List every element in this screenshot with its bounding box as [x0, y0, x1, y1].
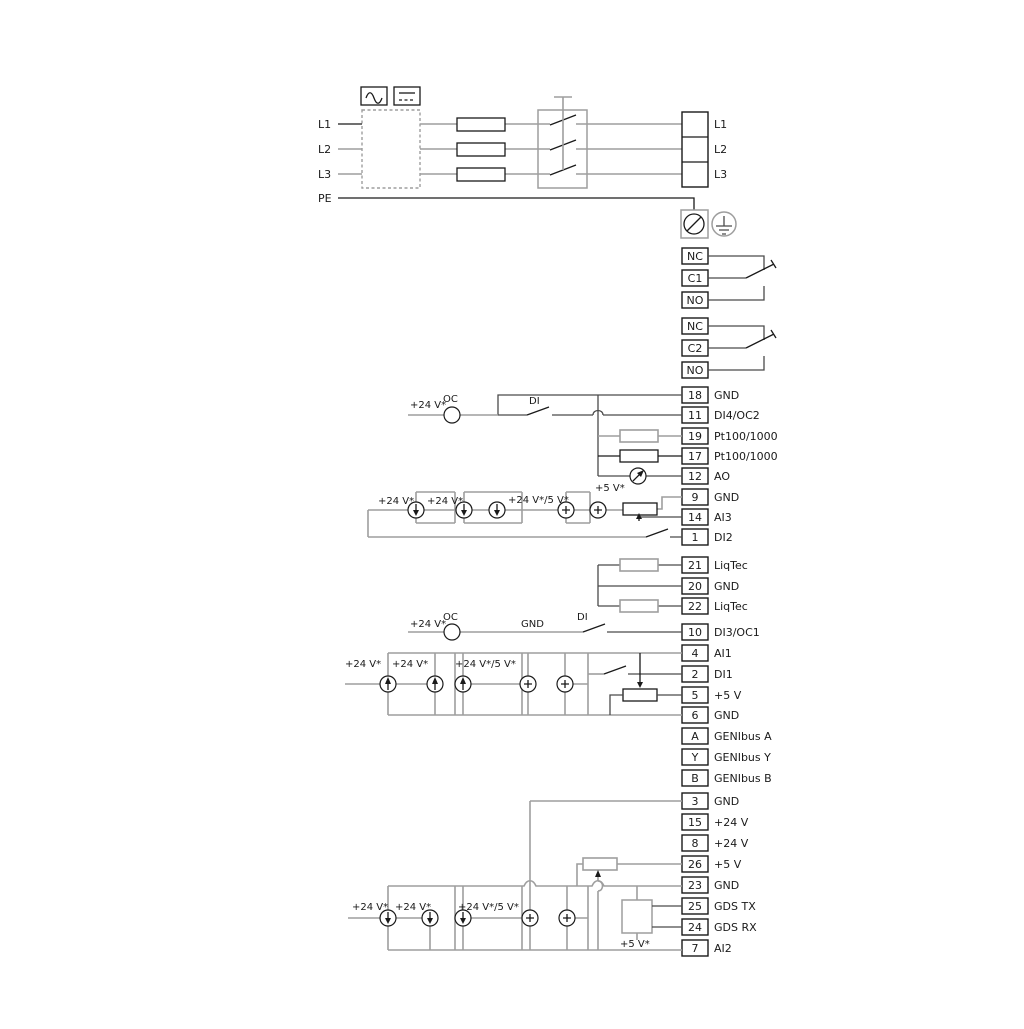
terminal-b: B: [691, 772, 699, 785]
terminal-14: 14: [688, 511, 702, 524]
pt100-resistor-19: [620, 430, 658, 442]
terminal-b-label: GENIbus B: [714, 772, 772, 785]
terminal-19-label: Pt100/1000: [714, 430, 778, 443]
v24-v5-label: +24 V*/5 V*: [455, 659, 516, 670]
v24-label: +24 V*: [392, 659, 428, 670]
relay2-c2: C2: [688, 342, 703, 355]
terminal-7: 7: [692, 942, 699, 955]
terminal-23-label: GND: [714, 879, 739, 892]
terminal-12: 12: [688, 470, 702, 483]
terminal-14-label: AI3: [714, 511, 732, 524]
terminal-22: 22: [688, 600, 702, 613]
terminal-24: 24: [688, 921, 702, 934]
potentiometer-ai3: [623, 503, 657, 515]
v24-label: +24 V*: [427, 496, 463, 507]
terminal-15-label: +24 V: [714, 816, 749, 829]
v24-v5-label: +24 V*/5 V*: [508, 495, 569, 506]
power-terminal-block: [682, 112, 708, 187]
output-label-l1: L1: [714, 118, 727, 131]
terminal-3: 3: [692, 795, 699, 808]
fuse-l3: [457, 168, 505, 181]
fuse-l1: [457, 118, 505, 131]
terminal-2: 2: [692, 668, 699, 681]
terminal-3-label: GND: [714, 795, 739, 808]
input-label-pe: PE: [318, 192, 332, 205]
terminal-8-label: +24 V: [714, 837, 749, 850]
terminal-20-label: GND: [714, 580, 739, 593]
oc2-open-collector-icon: [444, 407, 460, 423]
v5-label: +5 V*: [595, 483, 625, 494]
terminal-17: 17: [688, 450, 702, 463]
terminal-17-label: Pt100/1000: [714, 450, 778, 463]
terminal-9: 9: [692, 491, 699, 504]
relay1-no: NO: [687, 294, 704, 307]
v24-label: +24 V*: [410, 400, 446, 411]
terminal-6-label: GND: [714, 709, 739, 722]
terminal-7-label: AI2: [714, 942, 732, 955]
liqtec-sensor-21: [620, 559, 658, 571]
relay1-nc: NC: [687, 250, 703, 263]
terminal-21-label: LiqTec: [714, 559, 748, 572]
v24-label: +24 V*: [410, 619, 446, 630]
terminal-18: 18: [688, 389, 702, 402]
terminal-19: 19: [688, 430, 702, 443]
background: [0, 0, 1024, 1024]
pt100-resistor-17: [620, 450, 658, 462]
potentiometer-ai2: [583, 858, 617, 870]
output-label-l2: L2: [714, 143, 727, 156]
v5-label: +5 V*: [620, 939, 650, 950]
potentiometer-ai1: [623, 689, 657, 701]
terminal-1: 1: [692, 531, 699, 544]
terminal-25: 25: [688, 900, 702, 913]
input-label-l3: L3: [318, 168, 331, 181]
v24-label: +24 V*: [345, 659, 381, 670]
di-label: DI: [529, 396, 540, 407]
terminal-5: 5: [692, 689, 699, 702]
terminal-y: Y: [691, 751, 699, 764]
gnd-wire-label: GND: [521, 619, 544, 630]
terminal-4-label: AI1: [714, 647, 732, 660]
terminal-6: 6: [692, 709, 699, 722]
terminal-15: 15: [688, 816, 702, 829]
terminal-a: A: [691, 730, 699, 743]
oc-label: OC: [443, 394, 458, 405]
terminal-9-label: GND: [714, 491, 739, 504]
terminal-26-label: +5 V: [714, 858, 742, 871]
terminal-22-label: LiqTec: [714, 600, 748, 613]
terminal-10-label: DI3/OC1: [714, 626, 760, 639]
relay1-c1: C1: [688, 272, 703, 285]
output-label-l3: L3: [714, 168, 727, 181]
terminal-12-label: AO: [714, 470, 730, 483]
liqtec-sensor-22: [620, 600, 658, 612]
terminal-20: 20: [688, 580, 702, 593]
terminal-10: 10: [688, 626, 702, 639]
relay2-no: NO: [687, 364, 704, 377]
v24-label: +24 V*: [395, 902, 431, 913]
terminal-11-label: DI4/OC2: [714, 409, 760, 422]
fuse-l2: [457, 143, 505, 156]
terminal-18-label: GND: [714, 389, 739, 402]
terminal-25-label: GDS TX: [714, 900, 756, 913]
v24-label: +24 V*: [378, 496, 414, 507]
input-label-l2: L2: [318, 143, 331, 156]
terminal-2-label: DI1: [714, 668, 733, 681]
input-label-l1: L1: [318, 118, 331, 131]
terminal-21: 21: [688, 559, 702, 572]
liqtec-block: 21LiqTec 20GND 22LiqTec: [598, 557, 748, 614]
terminal-11: 11: [688, 409, 702, 422]
oc1-open-collector-icon: [444, 624, 460, 640]
relay2-nc: NC: [687, 320, 703, 333]
wiring-diagram-page: L1 L2 L3 PE L1 L2 L3: [0, 0, 1024, 1024]
terminal-8: 8: [692, 837, 699, 850]
terminal-a-label: GENIbus A: [714, 730, 772, 743]
terminal-23: 23: [688, 879, 702, 892]
v24-label: +24 V*: [352, 902, 388, 913]
terminal-1-label: DI2: [714, 531, 733, 544]
wiring-diagram: L1 L2 L3 PE L1 L2 L3: [0, 0, 1024, 1024]
terminal-y-label: GENIbus Y: [714, 751, 771, 764]
di-label: DI: [577, 612, 588, 623]
terminal-5-label: +5 V: [714, 689, 742, 702]
terminal-24-label: GDS RX: [714, 921, 757, 934]
terminal-4: 4: [692, 647, 699, 660]
v24-v5-label: +24 V*/5 V*: [458, 902, 519, 913]
terminal-26: 26: [688, 858, 702, 871]
oc-label: OC: [443, 612, 458, 623]
